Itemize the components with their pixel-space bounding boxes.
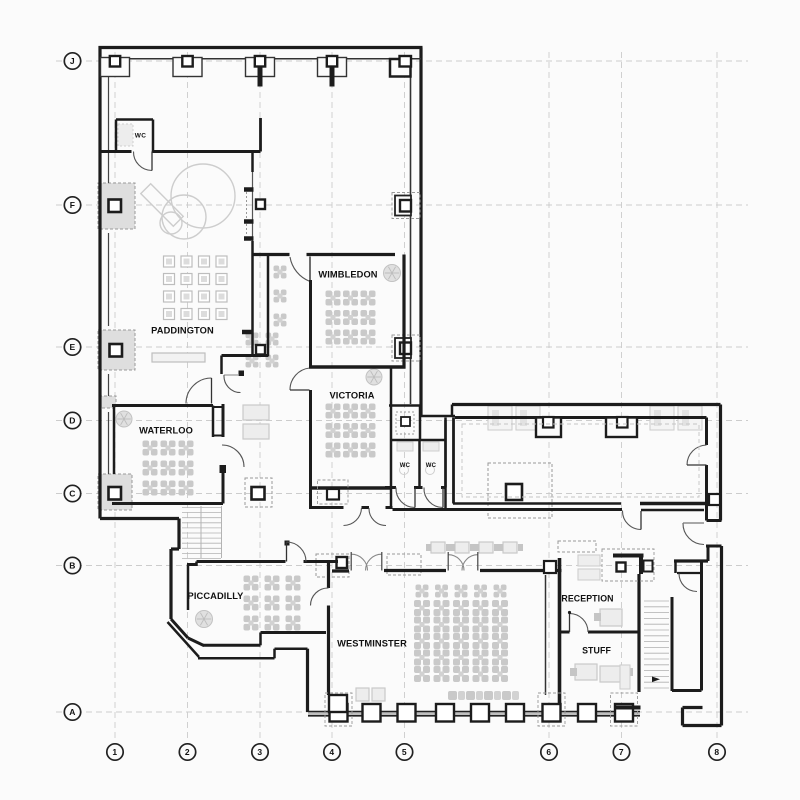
svg-text:1: 1: [112, 747, 117, 757]
svg-text:PICCADILLY: PICCADILLY: [188, 591, 245, 601]
svg-text:F: F: [70, 200, 76, 210]
svg-text:WESTMINSTER: WESTMINSTER: [337, 639, 407, 649]
svg-text:WC: WC: [135, 133, 146, 140]
svg-text:WIMBLEDON: WIMBLEDON: [318, 270, 377, 280]
svg-text:3: 3: [257, 747, 262, 757]
svg-text:6: 6: [546, 747, 551, 757]
svg-text:E: E: [69, 342, 75, 352]
svg-text:C: C: [69, 489, 76, 499]
svg-text:WC: WC: [400, 463, 411, 469]
svg-text:7: 7: [619, 747, 624, 757]
svg-text:PADDINGTON: PADDINGTON: [151, 326, 214, 336]
svg-text:D: D: [69, 416, 76, 426]
svg-text:RECEPTION: RECEPTION: [561, 594, 613, 604]
svg-text:J: J: [70, 56, 75, 66]
svg-text:A: A: [69, 707, 76, 717]
svg-text:8: 8: [714, 747, 719, 757]
svg-text:2: 2: [185, 747, 190, 757]
svg-text:5: 5: [402, 747, 407, 757]
svg-text:VICTORIA: VICTORIA: [329, 391, 374, 401]
svg-text:4: 4: [329, 747, 334, 757]
svg-text:WC: WC: [426, 463, 437, 469]
svg-text:STUFF: STUFF: [582, 646, 611, 656]
svg-text:WATERLOO: WATERLOO: [139, 426, 193, 436]
svg-text:B: B: [69, 561, 76, 571]
